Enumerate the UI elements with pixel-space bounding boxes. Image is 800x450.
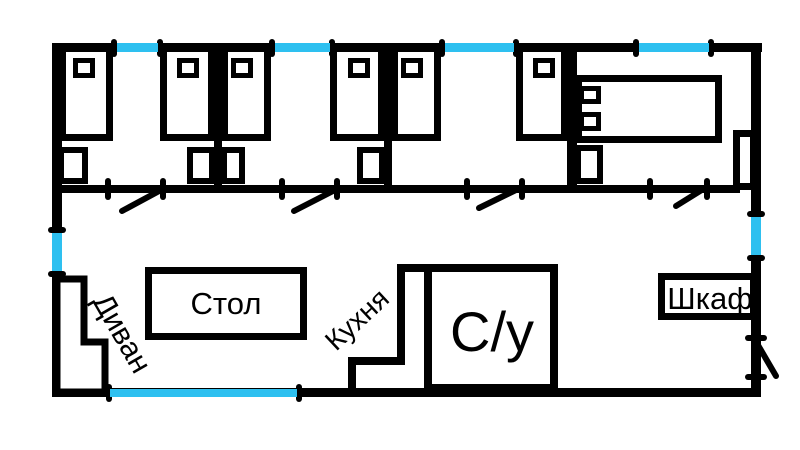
partition-2 [384,43,392,193]
nightstand-1 [61,150,85,181]
window-tick [747,211,765,217]
pillow [180,61,197,76]
door-jamb-tick [464,178,470,200]
door-leaf-room-2 [294,190,335,211]
floor-plan-canvas: Стол С/у Шкаф Диван Кухня [0,0,800,450]
window-top-2 [275,43,330,52]
nightstand-4 [360,150,382,181]
window-top-3 [445,43,514,52]
pillow [351,61,368,76]
door-jamb-tick [105,178,111,200]
bed-6 [520,49,565,138]
floor-plan: Стол С/у Шкаф Диван Кухня [0,0,800,450]
nightstand-5 [578,148,600,181]
pillow [234,61,251,76]
furniture [57,49,754,393]
door-leaf-room-1 [122,190,161,211]
pillow [582,89,599,102]
door-jamb-tick [279,178,285,200]
bed-7-double [579,79,719,140]
pillow [582,115,599,129]
window-top-1 [117,43,158,52]
bed-1 [63,49,110,138]
window-tick [48,227,66,233]
wardrobe-label: Шкаф [667,281,752,316]
nightstand-2 [190,150,212,181]
pillow [404,61,421,76]
nightstand-3 [224,150,242,181]
kitchen-counter-side [348,357,356,392]
door-jamb-tick [745,374,767,380]
bed-2 [164,49,212,138]
table-label: Стол [191,286,262,321]
bed-4 [334,49,382,138]
window-top-4 [639,43,709,52]
bed-3 [225,49,268,138]
kitchen-counter-step [348,357,405,365]
bed-5 [395,49,438,138]
pillow [76,61,93,76]
kitchen-wall-vertical [397,264,405,363]
wall-niche [737,134,754,187]
window-tick [747,255,765,261]
door-jamb-tick [647,178,653,200]
window-left [52,233,62,271]
kitchen-label: Кухня [319,283,395,357]
bathroom-label: С/у [450,300,534,363]
partition-1 [214,43,222,193]
window-right [751,217,761,255]
pillow [536,61,553,76]
window-bottom [110,389,297,397]
window-tick [633,39,639,57]
sofa [57,279,105,392]
